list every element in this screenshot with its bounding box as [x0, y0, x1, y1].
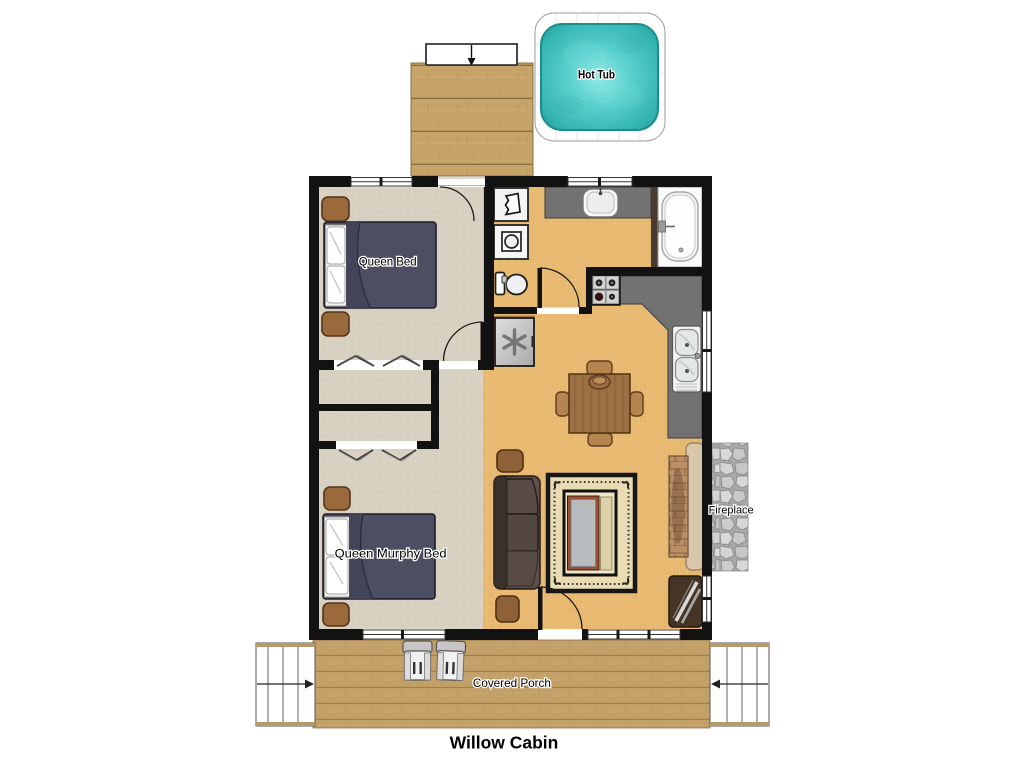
svg-text:Covered Porch: Covered Porch [473, 677, 551, 690]
svg-text:Queen Murphy Bed: Queen Murphy Bed [335, 547, 447, 561]
svg-text:Willow Cabin: Willow Cabin [450, 733, 559, 753]
svg-text:Queen Bed: Queen Bed [359, 255, 417, 269]
svg-text:Hot Tub: Hot Tub [578, 68, 615, 82]
svg-text:Fireplace: Fireplace [709, 505, 754, 517]
